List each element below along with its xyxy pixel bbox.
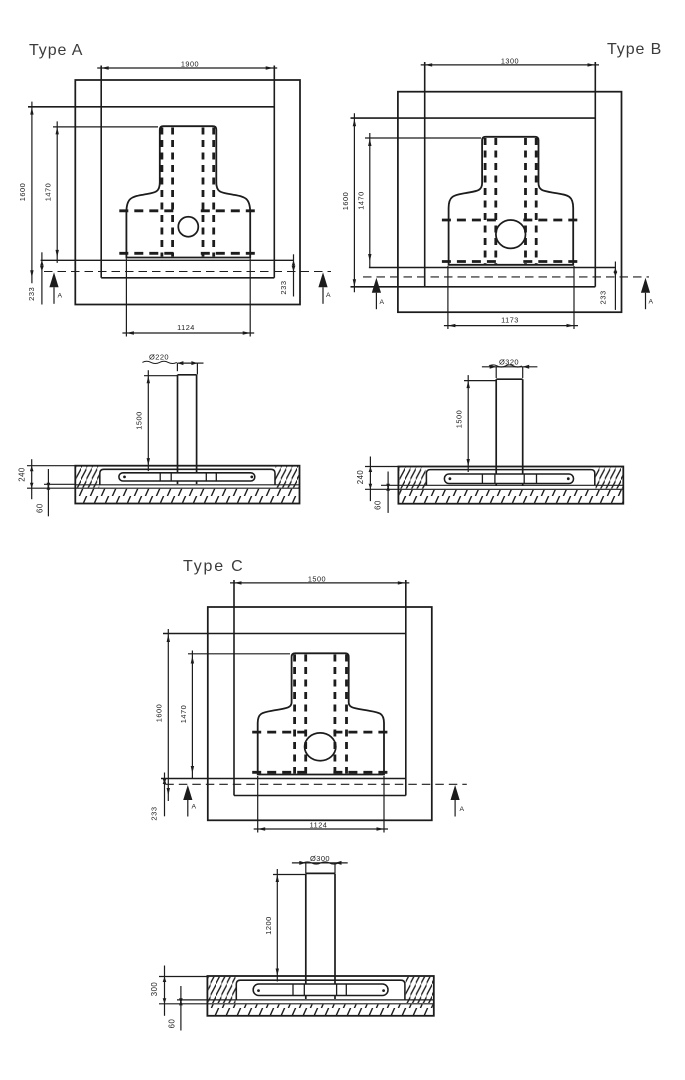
svg-text:60: 60: [374, 500, 383, 510]
svg-text:233: 233: [279, 280, 288, 294]
svg-text:1124: 1124: [310, 821, 328, 830]
svg-text:1470: 1470: [44, 183, 53, 201]
svg-text:1300: 1300: [501, 56, 519, 65]
svg-text:A: A: [326, 292, 331, 299]
svg-text:233: 233: [150, 806, 159, 820]
svg-text:240: 240: [17, 467, 26, 482]
svg-text:300: 300: [150, 982, 159, 997]
svg-text:1470: 1470: [356, 191, 365, 209]
svg-text:233: 233: [27, 287, 36, 301]
svg-text:60: 60: [35, 503, 44, 513]
svg-text:A: A: [379, 299, 384, 306]
svg-text:1124: 1124: [177, 323, 195, 332]
svg-text:240: 240: [356, 470, 365, 485]
svg-text:A: A: [57, 293, 62, 300]
svg-text:A: A: [459, 806, 464, 813]
svg-text:A: A: [191, 804, 196, 811]
svg-text:1200: 1200: [264, 916, 273, 934]
svg-text:1500: 1500: [454, 410, 463, 428]
svg-text:1600: 1600: [155, 704, 164, 722]
svg-text:A: A: [648, 299, 653, 306]
svg-text:Ø220: Ø220: [149, 353, 169, 362]
svg-text:1500: 1500: [135, 411, 144, 429]
svg-text:60: 60: [167, 1019, 176, 1029]
svg-text:1470: 1470: [179, 705, 188, 723]
svg-text:Type B: Type B: [607, 41, 662, 58]
svg-text:1600: 1600: [18, 183, 27, 201]
svg-text:1173: 1173: [501, 316, 519, 325]
svg-text:1500: 1500: [308, 574, 326, 583]
svg-text:1900: 1900: [181, 60, 199, 69]
svg-text:233: 233: [599, 290, 608, 304]
svg-text:Type C: Type C: [183, 558, 245, 575]
svg-text:1600: 1600: [341, 192, 350, 210]
svg-text:Type A: Type A: [29, 42, 83, 59]
